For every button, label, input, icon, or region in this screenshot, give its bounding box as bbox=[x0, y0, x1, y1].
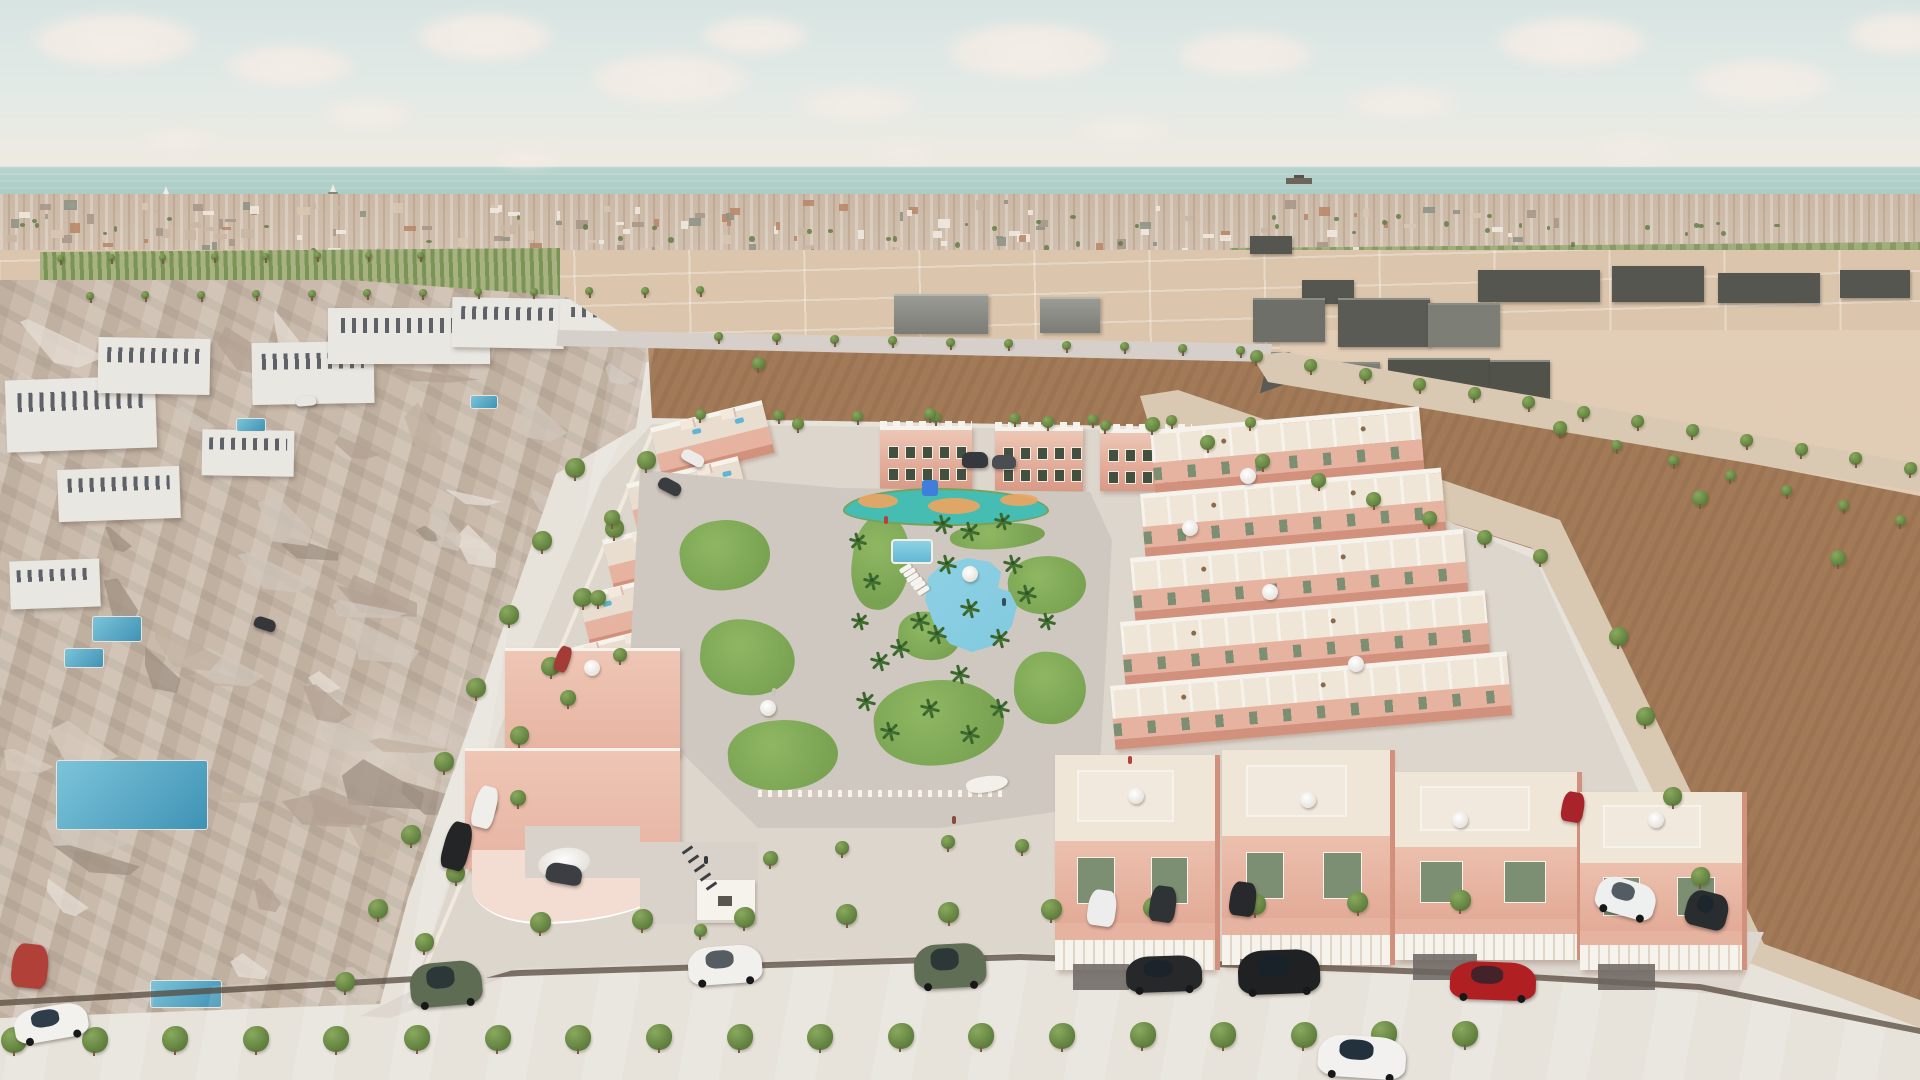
tree-foliage bbox=[243, 1026, 269, 1052]
car-windshield bbox=[426, 966, 455, 989]
tree-trunk bbox=[582, 605, 584, 610]
tree-row2-7 bbox=[415, 933, 434, 952]
coast-building bbox=[1453, 210, 1460, 214]
front-villa-2 bbox=[1395, 772, 1577, 960]
coast-building bbox=[1363, 209, 1369, 217]
palm-crown bbox=[998, 635, 1002, 639]
palm-crown bbox=[856, 538, 860, 542]
tree-row8-0 bbox=[714, 332, 723, 341]
terrace-furniture bbox=[1351, 490, 1356, 495]
apartment-window bbox=[1125, 449, 1136, 462]
car-windshield bbox=[930, 948, 958, 971]
coast-building bbox=[64, 200, 76, 209]
playground-slide bbox=[922, 480, 938, 496]
tree-trunk bbox=[1419, 389, 1421, 394]
park-white-fence bbox=[758, 790, 1004, 797]
apartment-window bbox=[939, 468, 950, 481]
tree-trunk bbox=[1207, 448, 1209, 453]
tree-trunk bbox=[1582, 417, 1584, 422]
coast-building bbox=[1404, 224, 1417, 228]
tree-row7-11 bbox=[696, 286, 704, 294]
tree-trunk bbox=[145, 297, 147, 302]
tree-trunk bbox=[738, 1048, 740, 1053]
gray-building-cluster-4 bbox=[1253, 298, 1325, 342]
tree-foliage bbox=[485, 1025, 511, 1051]
tree-trunk bbox=[550, 674, 552, 679]
apartment-window bbox=[939, 446, 950, 459]
tree-row4-4 bbox=[1468, 387, 1481, 400]
car-wheel-rear bbox=[1517, 995, 1525, 1003]
tree-single-6 bbox=[560, 690, 576, 706]
coast-building bbox=[19, 212, 30, 218]
palm-crown bbox=[918, 618, 922, 622]
tree-trunk bbox=[1617, 644, 1619, 649]
tree-row7-2 bbox=[197, 291, 205, 299]
warehouse-1 bbox=[1040, 297, 1100, 333]
tree-trunk bbox=[539, 931, 541, 936]
coast-building bbox=[1261, 228, 1268, 233]
tree-trunk bbox=[1014, 422, 1016, 427]
tree-trunk bbox=[90, 298, 92, 303]
coast-building bbox=[1304, 214, 1308, 220]
coast-building bbox=[976, 200, 985, 210]
coast-tree-dot bbox=[828, 229, 834, 233]
gray-building-cluster-5 bbox=[1338, 298, 1430, 347]
lowpoly-white-building-1 bbox=[98, 337, 211, 395]
tree-row9-6 bbox=[365, 252, 372, 259]
tree-row8-9 bbox=[1236, 346, 1245, 355]
tree-row10-7 bbox=[1245, 417, 1256, 428]
tree-trunk bbox=[367, 295, 369, 300]
coast-tree-dot bbox=[652, 226, 656, 230]
tree-trunk bbox=[1637, 426, 1639, 431]
tree-row4-7 bbox=[1631, 415, 1644, 428]
dark-sedan bbox=[1125, 955, 1202, 994]
coast-tree-dot bbox=[1519, 223, 1522, 228]
coast-building bbox=[103, 243, 113, 246]
apartment-window bbox=[1054, 469, 1065, 482]
tree-trunk bbox=[214, 258, 216, 263]
tree-trunk bbox=[1171, 424, 1173, 429]
tree-foliage bbox=[434, 752, 454, 772]
tree-trunk bbox=[265, 258, 267, 263]
coast-building bbox=[1285, 200, 1295, 208]
coast-building bbox=[1140, 222, 1151, 229]
sailboat-1 bbox=[330, 184, 336, 192]
lowpoly-white-building-4 bbox=[452, 297, 565, 349]
tree-trunk bbox=[658, 1048, 660, 1053]
cloud-3 bbox=[590, 52, 750, 104]
tree-trunk bbox=[819, 1048, 821, 1053]
coast-building bbox=[458, 238, 468, 248]
palm-crown bbox=[968, 528, 972, 532]
patio-umbrella-2 bbox=[1240, 468, 1256, 484]
coast-building bbox=[154, 210, 158, 214]
villa-driveway-3 bbox=[1598, 964, 1655, 990]
tree-row0-11 bbox=[888, 1023, 914, 1049]
coast-building bbox=[156, 228, 163, 236]
tree-row4-3 bbox=[1413, 378, 1426, 391]
tree-foliage bbox=[734, 907, 755, 928]
apartment-window bbox=[888, 468, 899, 481]
tree-trunk bbox=[1746, 445, 1748, 450]
coast-tree-dot bbox=[1485, 228, 1490, 233]
coast-tree-dot bbox=[426, 240, 432, 243]
playground-orange-patch-1 bbox=[928, 498, 980, 514]
lowpoly-pool-1 bbox=[64, 648, 104, 668]
white-sedan-driving bbox=[1317, 1033, 1408, 1080]
tree-trunk bbox=[1843, 509, 1845, 514]
apartment-window bbox=[1071, 469, 1082, 482]
coast-tree-dot bbox=[1352, 231, 1356, 234]
tree-row7-8 bbox=[530, 288, 538, 296]
person-1 bbox=[1002, 598, 1006, 606]
tree-trunk bbox=[619, 660, 621, 665]
person-2 bbox=[772, 688, 776, 696]
cargo-ship-top bbox=[1294, 175, 1304, 178]
palm-crown bbox=[858, 618, 862, 622]
villa-side-shadow bbox=[1742, 792, 1747, 970]
tree-foliage bbox=[968, 1023, 994, 1049]
tree-trunk bbox=[60, 260, 62, 265]
lowpoly-facet bbox=[334, 436, 380, 460]
coast-tree-dot bbox=[1487, 214, 1492, 218]
coast-building bbox=[1423, 207, 1435, 213]
coast-tree-dot bbox=[1396, 214, 1401, 219]
tree-trunk bbox=[1240, 353, 1242, 358]
coast-tree-dot bbox=[1698, 224, 1704, 228]
apartment-window bbox=[1020, 447, 1031, 460]
tree-trunk bbox=[1909, 473, 1911, 478]
tree-trunk bbox=[13, 1051, 15, 1056]
lowpoly-facet bbox=[446, 489, 501, 505]
warehouse-0 bbox=[894, 294, 988, 334]
tree-foliage bbox=[938, 902, 959, 923]
tree-trunk bbox=[1484, 543, 1486, 548]
cloud-2 bbox=[415, 12, 555, 60]
building-windows bbox=[17, 567, 93, 582]
apartment-window bbox=[1020, 469, 1031, 482]
villa-window-right bbox=[1504, 861, 1546, 902]
playground-orange-patch-0 bbox=[858, 494, 898, 508]
tree-foliage bbox=[1347, 892, 1368, 913]
coast-building bbox=[204, 227, 214, 231]
tree-row0-2 bbox=[162, 1026, 188, 1052]
tree-trunk bbox=[517, 804, 519, 809]
terrace-furniture bbox=[1191, 630, 1196, 635]
tree-row5-0 bbox=[1145, 417, 1160, 432]
tree-trunk bbox=[1673, 464, 1675, 469]
lowpoly-facet bbox=[176, 406, 216, 432]
coast-tree-dot bbox=[1272, 215, 1275, 220]
tree-trunk bbox=[1357, 911, 1359, 916]
tree-trunk bbox=[699, 418, 701, 423]
tree-trunk bbox=[929, 418, 931, 423]
tree-trunk bbox=[574, 476, 576, 481]
terrace-furniture bbox=[1221, 438, 1226, 443]
coast-building bbox=[1004, 200, 1008, 204]
tree-trunk bbox=[589, 293, 591, 298]
coast-building bbox=[907, 210, 912, 217]
palm-crown bbox=[878, 658, 882, 662]
coast-building bbox=[241, 229, 253, 238]
coast-building bbox=[802, 245, 814, 249]
coast-building bbox=[7, 235, 17, 243]
coast-building bbox=[1527, 210, 1536, 218]
tree-foliage bbox=[1130, 1022, 1156, 1048]
tree-row6-1 bbox=[1636, 707, 1655, 726]
tree-trunk bbox=[1800, 454, 1802, 459]
tree-trunk bbox=[1021, 851, 1023, 856]
lowpoly-facet bbox=[105, 527, 132, 552]
lowpoly-pool-0 bbox=[92, 616, 142, 642]
tree-row8-8 bbox=[1178, 344, 1187, 353]
coast-building bbox=[193, 204, 203, 211]
tree-foliage bbox=[646, 1024, 672, 1050]
coast-building bbox=[1156, 206, 1160, 210]
coast-building bbox=[635, 207, 640, 214]
tree-trunk bbox=[980, 1047, 982, 1052]
tree-trunk bbox=[644, 293, 646, 298]
tree-foliage bbox=[807, 1024, 833, 1050]
coast-tree-dot bbox=[1382, 220, 1387, 226]
tree-single-15 bbox=[694, 924, 707, 937]
coast-building bbox=[241, 239, 244, 242]
palm-crown bbox=[888, 728, 892, 732]
coast-tree-dot bbox=[1645, 225, 1650, 230]
stair-bulkhead bbox=[607, 586, 624, 598]
cloud-10 bbox=[1175, 30, 1315, 76]
building-windows bbox=[461, 306, 555, 321]
red-truck-lowpoly bbox=[10, 942, 50, 990]
coast-tree-dot bbox=[35, 223, 40, 228]
tree-row8-1 bbox=[772, 333, 781, 342]
tree-trunk bbox=[174, 1050, 176, 1055]
red-hatchback bbox=[1449, 961, 1536, 1002]
tree-row3-5 bbox=[1041, 899, 1062, 920]
tree-row4-10 bbox=[1795, 443, 1808, 456]
tree-row1-6 bbox=[368, 899, 388, 919]
coast-tree-dot bbox=[893, 236, 896, 241]
tree-trunk bbox=[700, 292, 702, 297]
person-3 bbox=[952, 816, 956, 824]
white-suv bbox=[687, 943, 763, 986]
tree-row3-4 bbox=[938, 902, 959, 923]
coast-building bbox=[1554, 218, 1559, 227]
lowpoly-facet bbox=[258, 496, 313, 546]
tree-row6-3 bbox=[1691, 867, 1710, 886]
apartment-window bbox=[922, 446, 933, 459]
tree-foliage bbox=[404, 1025, 430, 1051]
distant-commercial-building-5 bbox=[1840, 270, 1910, 298]
coast-building bbox=[250, 206, 259, 213]
tree-trunk bbox=[947, 847, 949, 852]
palm-crown bbox=[941, 521, 945, 525]
tree-row4-1 bbox=[1304, 359, 1317, 372]
terrace-furniture bbox=[1211, 502, 1216, 507]
tree-row7-4 bbox=[308, 290, 316, 298]
tree-trunk bbox=[577, 1049, 579, 1054]
tree-trunk bbox=[1310, 370, 1312, 375]
tree-trunk bbox=[1428, 524, 1430, 529]
coast-building bbox=[1185, 216, 1194, 221]
gray-building-cluster-6 bbox=[1428, 303, 1500, 347]
coast-building bbox=[70, 223, 79, 233]
coast-tree-dot bbox=[886, 237, 891, 241]
tree-trunk bbox=[475, 696, 477, 701]
coast-building bbox=[144, 239, 149, 243]
tree-row0-7 bbox=[565, 1025, 591, 1051]
cloud-12 bbox=[1495, 16, 1650, 66]
green-suv-2 bbox=[913, 942, 987, 990]
lowpoly-facet bbox=[155, 623, 221, 671]
tree-trunk bbox=[834, 342, 836, 347]
tree-trunk bbox=[1141, 1046, 1143, 1051]
coast-building bbox=[45, 214, 49, 219]
cloud-11 bbox=[1345, 86, 1460, 120]
tree-trunk bbox=[1672, 804, 1674, 809]
lowpoly-pool-2 bbox=[56, 760, 208, 830]
coast-building bbox=[142, 203, 148, 210]
tree-trunk bbox=[1464, 1045, 1466, 1050]
coast-building bbox=[900, 212, 903, 221]
tree-trunk bbox=[368, 257, 370, 262]
tree-foliage bbox=[565, 458, 585, 478]
coast-building bbox=[229, 239, 235, 246]
tree-row7-9 bbox=[585, 287, 593, 295]
tree-trunk bbox=[757, 368, 759, 373]
coast-building bbox=[191, 222, 202, 228]
coast-tree-dot bbox=[114, 226, 117, 231]
tree-row0-16 bbox=[1291, 1022, 1317, 1048]
lowpoly-pool-5 bbox=[470, 395, 498, 409]
tree-trunk bbox=[1644, 724, 1646, 729]
coast-tree-dot bbox=[1571, 242, 1574, 246]
coast-building bbox=[1028, 210, 1033, 215]
tree-row5-6 bbox=[1477, 530, 1492, 545]
tree-row7-1 bbox=[141, 291, 149, 299]
apartment-window bbox=[1108, 471, 1119, 484]
tree-trunk bbox=[950, 345, 952, 350]
lowpoly-white-building-5 bbox=[57, 466, 181, 522]
palm-crown bbox=[935, 631, 939, 635]
tree-trunk bbox=[541, 549, 543, 554]
lowpoly-facet bbox=[353, 619, 420, 664]
lowpoly-facet bbox=[230, 953, 268, 979]
cloud-6 bbox=[700, 16, 810, 54]
tree-single-0 bbox=[752, 357, 765, 370]
tree-trunk bbox=[1151, 430, 1153, 435]
tree-single-1 bbox=[792, 418, 804, 430]
tree-row11-5 bbox=[1838, 500, 1849, 511]
patio-umbrella-10 bbox=[760, 700, 776, 716]
tree-trunk bbox=[597, 604, 599, 609]
cargo-ship bbox=[1286, 178, 1312, 184]
cloud-13 bbox=[1690, 58, 1835, 104]
tree-trunk bbox=[1699, 504, 1701, 509]
lowpoly-facet bbox=[4, 749, 54, 773]
coast-building bbox=[225, 219, 235, 222]
tree-foliage bbox=[1450, 890, 1471, 911]
tree-row3-2 bbox=[734, 907, 755, 928]
coast-building bbox=[557, 211, 560, 220]
tree-row0-15 bbox=[1210, 1022, 1236, 1048]
tree-row4-0 bbox=[1250, 350, 1263, 363]
apartment-window bbox=[888, 446, 899, 459]
sailboat-0 bbox=[163, 186, 169, 194]
lowpoly-facet bbox=[253, 878, 282, 912]
tree-trunk bbox=[1008, 346, 1010, 351]
tree-trunk bbox=[776, 340, 778, 345]
tree-row0-10 bbox=[807, 1024, 833, 1050]
coast-building bbox=[333, 229, 337, 236]
distant-commercial-building-1 bbox=[1612, 266, 1704, 302]
cloud-16 bbox=[1590, 136, 1675, 160]
green-suv bbox=[408, 959, 484, 1009]
coast-building bbox=[933, 231, 942, 237]
coast-building bbox=[1009, 231, 1020, 236]
tree-row1-3 bbox=[466, 678, 486, 698]
tree-row0-3 bbox=[243, 1026, 269, 1052]
small-pool bbox=[891, 539, 933, 564]
tree-row3-8 bbox=[1347, 892, 1368, 913]
villa-driveway-0 bbox=[1073, 964, 1129, 990]
coast-building bbox=[599, 240, 604, 244]
apartment-window bbox=[905, 446, 916, 459]
tree-trunk bbox=[533, 294, 535, 299]
tree-row9-3 bbox=[211, 253, 218, 260]
car-wheel-front bbox=[1248, 989, 1256, 997]
tree-trunk bbox=[567, 704, 569, 709]
coast-building bbox=[689, 218, 701, 226]
tree-trunk bbox=[1318, 486, 1320, 491]
tree-foliage bbox=[499, 605, 519, 625]
tree-row5-7 bbox=[1533, 549, 1548, 564]
coast-building bbox=[528, 231, 535, 241]
tree-foliage bbox=[632, 909, 653, 930]
tree-trunk bbox=[1616, 449, 1618, 454]
tree-trunk bbox=[1364, 379, 1366, 384]
tree-trunk bbox=[478, 294, 480, 299]
tree-row10-1 bbox=[773, 410, 784, 421]
tree-row8-7 bbox=[1120, 342, 1129, 351]
coast-building bbox=[1220, 235, 1231, 241]
tree-single-11 bbox=[763, 851, 778, 866]
cloud-15 bbox=[495, 148, 560, 168]
tree-trunk bbox=[846, 923, 848, 928]
tree-trunk bbox=[420, 257, 422, 262]
tree-trunk bbox=[1050, 918, 1052, 923]
tree-trunk bbox=[1559, 433, 1561, 438]
patio-umbrella-5 bbox=[1348, 656, 1364, 672]
person-5 bbox=[1128, 756, 1132, 764]
tree-foliage bbox=[1049, 1023, 1075, 1049]
tree-row11-1 bbox=[1611, 440, 1622, 451]
car-wheel-rear bbox=[1185, 985, 1193, 993]
coast-building bbox=[996, 236, 1003, 240]
coast-building bbox=[1492, 227, 1504, 232]
palm-crown bbox=[998, 705, 1002, 709]
tree-row4-8 bbox=[1686, 424, 1699, 437]
tree-trunk bbox=[255, 1050, 257, 1055]
tree-trunk bbox=[201, 297, 203, 302]
tree-row9-4 bbox=[262, 253, 269, 260]
tree-row1-0 bbox=[565, 458, 585, 478]
tree-trunk bbox=[1254, 913, 1256, 918]
coast-building bbox=[297, 207, 310, 214]
tree-trunk bbox=[111, 259, 113, 264]
coast-building bbox=[185, 230, 197, 240]
